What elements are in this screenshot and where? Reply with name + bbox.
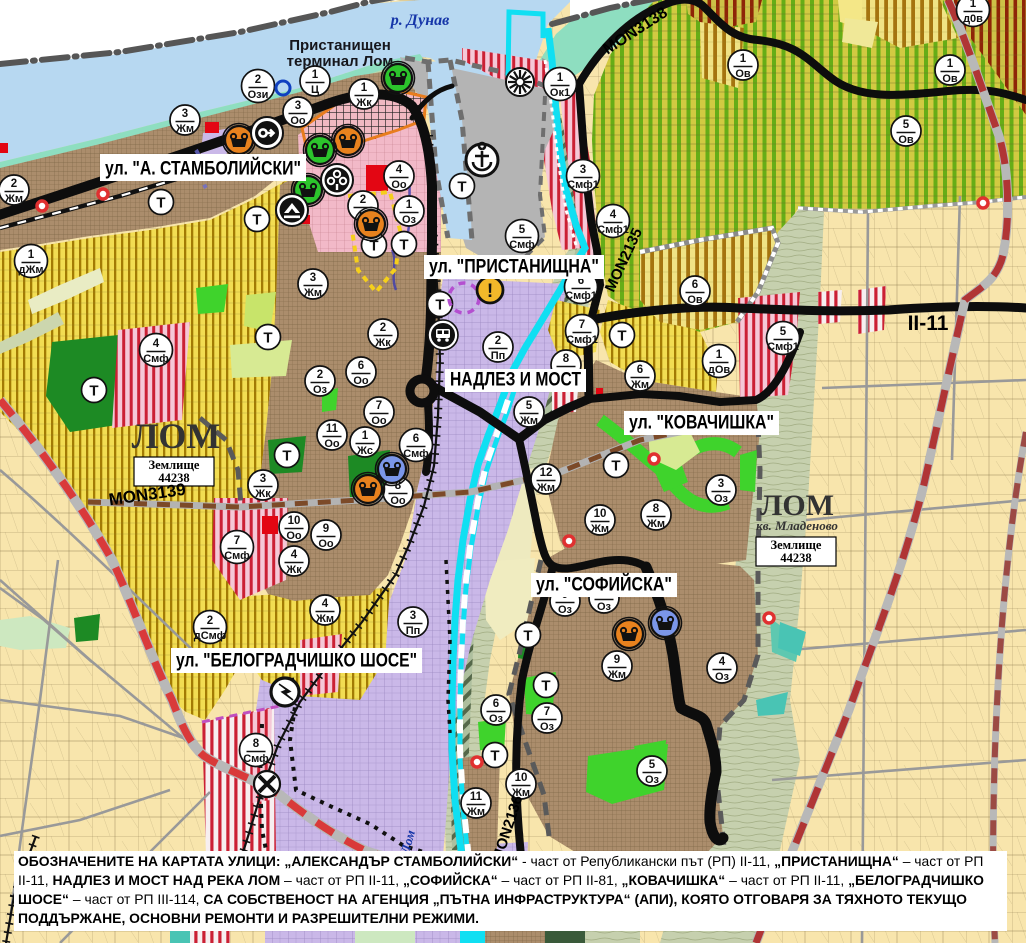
svg-text:2: 2 <box>255 74 261 86</box>
svg-text:дОв: дОв <box>708 364 731 376</box>
svg-text:Смф: Смф <box>509 239 535 251</box>
svg-text:Т: Т <box>541 678 550 695</box>
svg-text:2: 2 <box>495 335 501 347</box>
svg-text:1: 1 <box>947 58 954 70</box>
svg-text:7: 7 <box>579 319 585 331</box>
svg-text:5: 5 <box>903 119 910 131</box>
svg-text:7: 7 <box>376 400 382 412</box>
svg-text:6: 6 <box>413 433 419 445</box>
svg-text:дСмф: дСмф <box>194 630 227 642</box>
svg-text:Оз: Оз <box>489 713 504 725</box>
svg-text:2: 2 <box>380 322 386 334</box>
svg-text:2: 2 <box>11 178 17 190</box>
svg-text:8: 8 <box>563 353 570 365</box>
svg-text:Оз: Оз <box>558 604 573 616</box>
svg-text:Землище: Землище <box>771 538 822 552</box>
svg-text:Жс: Жс <box>356 445 373 457</box>
svg-text:Жм: Жм <box>519 415 538 427</box>
svg-text:НАДЛЕЗ И МОСТ: НАДЛЕЗ И МОСТ <box>450 369 581 391</box>
svg-text:Жм: Жм <box>175 123 194 135</box>
svg-text:Ов: Ов <box>687 294 703 306</box>
svg-text:дЖм: дЖм <box>18 264 43 276</box>
svg-text:Ов: Ов <box>735 68 751 80</box>
svg-text:2: 2 <box>317 369 323 381</box>
svg-text:Жм: Жм <box>607 669 626 681</box>
svg-text:II-11, НАДЛЕЗ И МОСТ НАД РЕКА: II-11, НАДЛЕЗ И МОСТ НАД РЕКА ЛОМ – част… <box>18 871 984 888</box>
svg-text:10: 10 <box>288 515 301 527</box>
svg-text:д0в: д0в <box>963 13 983 25</box>
svg-text:Оо: Оо <box>290 115 306 127</box>
svg-text:3: 3 <box>310 272 316 284</box>
svg-text:Ов: Ов <box>898 134 914 146</box>
svg-text:Оз: Оз <box>402 214 417 226</box>
svg-text:4: 4 <box>322 598 329 610</box>
svg-text:Смф: Смф <box>143 353 169 365</box>
svg-text:Оо: Оо <box>286 530 302 542</box>
svg-text:ПОДДЪРЖАНЕ, ОСНОВНИ РЕМОНТИ И: ПОДДЪРЖАНЕ, ОСНОВНИ РЕМОНТИ И РАЗРЕШИТЕЛ… <box>18 910 479 926</box>
svg-text:Оз: Оз <box>597 601 612 613</box>
svg-text:6: 6 <box>692 279 698 291</box>
svg-text:Ози: Ози <box>248 89 269 101</box>
svg-text:3: 3 <box>580 164 586 176</box>
svg-text:Жм: Жм <box>303 287 322 299</box>
svg-text:Т: Т <box>282 448 291 465</box>
svg-text:4: 4 <box>719 656 726 668</box>
svg-text:3: 3 <box>410 610 416 622</box>
svg-text:Жк: Жк <box>254 488 271 500</box>
svg-text:5: 5 <box>649 759 656 771</box>
svg-text:Оз: Оз <box>645 774 660 786</box>
svg-text:5: 5 <box>780 326 787 338</box>
svg-text:Жм: Жм <box>315 613 334 625</box>
svg-text:р. Дунав: р. Дунав <box>389 12 449 29</box>
svg-text:7: 7 <box>234 535 240 547</box>
svg-text:Жк: Жк <box>355 97 372 109</box>
svg-text:9: 9 <box>614 654 620 666</box>
svg-text:Смф1: Смф1 <box>767 341 799 353</box>
svg-text:Смф: Смф <box>243 753 269 765</box>
svg-text:Смф: Смф <box>224 550 250 562</box>
svg-text:Смф: Смф <box>403 448 429 460</box>
svg-text:Т: Т <box>611 458 620 475</box>
svg-text:3: 3 <box>295 100 301 112</box>
svg-text:10: 10 <box>594 508 607 520</box>
svg-text:Оз: Оз <box>714 493 729 505</box>
svg-text:6: 6 <box>637 364 643 376</box>
svg-text:Т: Т <box>263 330 272 347</box>
svg-text:5: 5 <box>519 224 526 236</box>
svg-text:1: 1 <box>557 72 564 84</box>
svg-text:Оо: Оо <box>318 538 334 550</box>
svg-text:5: 5 <box>526 400 533 412</box>
svg-text:Т: Т <box>435 297 444 314</box>
svg-text:3: 3 <box>182 108 188 120</box>
svg-text:8: 8 <box>653 503 660 515</box>
svg-text:Жм: Жм <box>590 523 609 535</box>
svg-text:терминал Лом: терминал Лом <box>287 53 394 70</box>
svg-text:Оо: Оо <box>391 179 407 191</box>
svg-text:Жм: Жм <box>4 193 23 205</box>
svg-text:4: 4 <box>291 549 298 561</box>
svg-text:4: 4 <box>396 164 403 176</box>
svg-text:Смф1: Смф1 <box>565 290 597 302</box>
svg-text:Жм: Жм <box>630 379 649 391</box>
svg-text:1: 1 <box>362 430 369 442</box>
svg-text:Ов: Ов <box>942 73 958 85</box>
svg-text:!: ! <box>487 281 493 302</box>
svg-text:Т: Т <box>399 237 408 254</box>
svg-text:Т: Т <box>617 328 626 345</box>
svg-text:Оо: Оо <box>371 415 387 427</box>
svg-text:10: 10 <box>515 772 528 784</box>
svg-text:Т: Т <box>457 179 466 196</box>
svg-text:Оз: Оз <box>540 721 555 733</box>
svg-text:4: 4 <box>153 338 160 350</box>
svg-text:3: 3 <box>260 473 266 485</box>
svg-text:11: 11 <box>470 791 483 803</box>
svg-text:Пп: Пп <box>406 625 421 637</box>
svg-text:2: 2 <box>360 194 366 206</box>
svg-text:Смф1: Смф1 <box>567 179 599 191</box>
svg-text:Оз: Оз <box>313 384 328 396</box>
svg-text:Т: Т <box>252 212 261 229</box>
svg-text:Пп: Пп <box>491 350 506 362</box>
svg-text:Оо: Оо <box>324 438 340 450</box>
svg-text:Смф1: Смф1 <box>566 334 598 346</box>
svg-text:12: 12 <box>540 467 553 479</box>
svg-text:Жк: Жк <box>285 564 302 576</box>
svg-text:Оо: Оо <box>390 495 406 507</box>
svg-text:1: 1 <box>970 0 977 10</box>
svg-text:7: 7 <box>544 706 550 718</box>
svg-text:8: 8 <box>253 738 260 750</box>
svg-text:Оз: Оз <box>715 671 730 683</box>
svg-text:6: 6 <box>358 360 364 372</box>
svg-text:ОБОЗНАЧЕНИТЕ НА КАРТАТА УЛИЦИ:: ОБОЗНАЧЕНИТЕ НА КАРТАТА УЛИЦИ: „АЛЕКСАНД… <box>18 852 983 869</box>
svg-text:9: 9 <box>323 523 329 535</box>
svg-text:ШОСЕ“ – част от РП III-114, СА: ШОСЕ“ – част от РП III-114, СА СОБСТВЕНО… <box>18 891 967 907</box>
svg-text:1: 1 <box>361 82 368 94</box>
svg-text:Жм: Жм <box>536 482 555 494</box>
svg-text:Т: Т <box>490 748 499 765</box>
svg-text:Пристанищен: Пристанищен <box>289 37 391 54</box>
svg-text:Ок1: Ок1 <box>550 87 570 99</box>
svg-text:1: 1 <box>740 53 747 65</box>
svg-text:ЛОМ: ЛОМ <box>132 416 221 456</box>
svg-text:ул. "ПРИСТАНИЩНА": ул. "ПРИСТАНИЩНА" <box>429 256 599 278</box>
svg-text:1: 1 <box>716 349 723 361</box>
svg-text:ул. "КОВАЧИШКА": ул. "КОВАЧИШКА" <box>629 412 774 434</box>
svg-text:Оо: Оо <box>353 375 369 387</box>
svg-text:Землище: Землище <box>149 458 200 472</box>
svg-text:ул. "СОФИЙСКА": ул. "СОФИЙСКА" <box>536 572 672 596</box>
svg-text:Ц: Ц <box>311 84 319 96</box>
svg-text:Жм: Жм <box>466 806 485 818</box>
svg-text:Жм: Жм <box>646 518 665 530</box>
svg-text:4: 4 <box>610 209 617 221</box>
svg-text:2: 2 <box>207 615 213 627</box>
svg-text:44238: 44238 <box>780 551 811 565</box>
svg-text:Смф1: Смф1 <box>597 224 629 236</box>
svg-text:кв. Младеново: кв. Младеново <box>756 518 838 533</box>
svg-text:1: 1 <box>406 199 413 211</box>
svg-text:3: 3 <box>718 478 724 490</box>
svg-text:1: 1 <box>28 249 35 261</box>
svg-text:Т: Т <box>156 195 165 212</box>
svg-text:II-11: II-11 <box>908 312 949 335</box>
svg-text:ул. "А. СТАМБОЛИЙСКИ": ул. "А. СТАМБОЛИЙСКИ" <box>105 156 301 180</box>
svg-text:Жк: Жк <box>374 337 391 349</box>
svg-text:ул. "БЕЛОГРАДЧИШКО ШОСЕ": ул. "БЕЛОГРАДЧИШКО ШОСЕ" <box>176 650 417 672</box>
svg-text:6: 6 <box>493 698 499 710</box>
svg-text:1: 1 <box>312 69 319 81</box>
svg-text:Т: Т <box>523 628 532 645</box>
svg-text:Т: Т <box>89 383 98 400</box>
svg-text:11: 11 <box>326 423 339 435</box>
